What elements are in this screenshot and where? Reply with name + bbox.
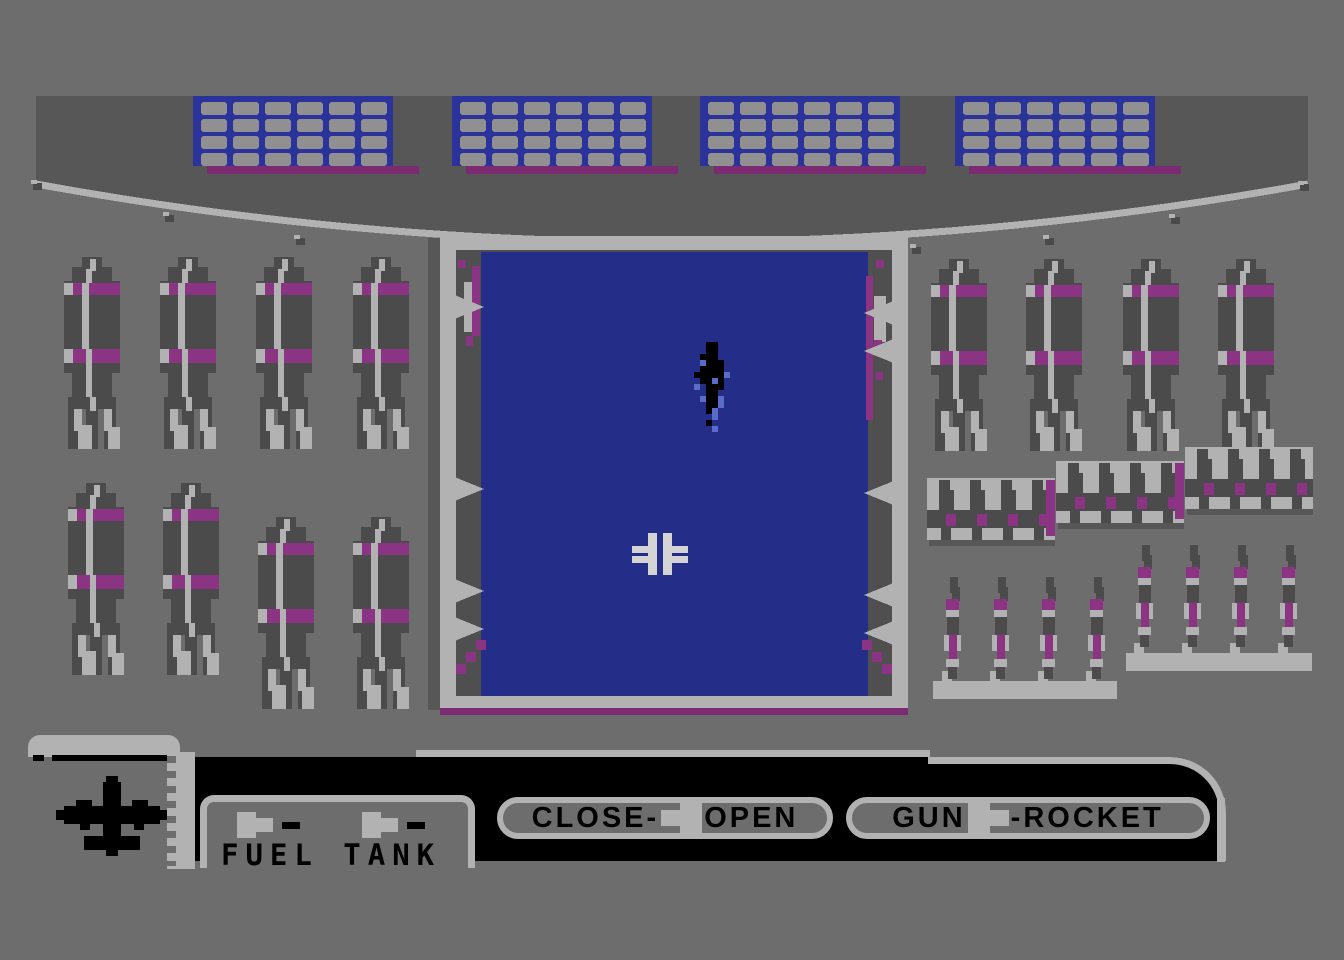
close-label: CLOSE- <box>532 802 660 835</box>
bomb <box>68 483 124 675</box>
bomb <box>258 517 314 709</box>
bomb <box>160 257 216 449</box>
fuel-tank-panel[interactable]: FUEL TANK <box>200 795 475 868</box>
hud-bar-trim <box>416 750 930 757</box>
rocket <box>1280 545 1297 647</box>
rocket <box>1232 545 1249 647</box>
aircraft-silhouette-icon <box>56 776 168 862</box>
rocket-label: -ROCKET <box>1011 802 1164 835</box>
aircraft-status-panel <box>28 735 180 757</box>
bomb-bay <box>428 236 908 715</box>
rocket <box>1040 577 1057 679</box>
open-label: OPEN <box>704 802 798 835</box>
bomb <box>353 517 409 709</box>
rocket <box>992 577 1009 679</box>
rocket <box>944 577 961 679</box>
bomb <box>931 259 987 451</box>
bomb-rack-right-top <box>931 259 1274 451</box>
bomb <box>1218 259 1274 451</box>
bomb <box>1123 259 1179 451</box>
panel-divider <box>52 755 168 761</box>
hud-bar-endline <box>1217 798 1225 862</box>
bomb <box>1026 259 1082 451</box>
fuel-selector-arrow-icon <box>362 812 425 838</box>
rocket-groups <box>933 545 1312 699</box>
panel-divider <box>33 755 44 761</box>
weapon-toggle[interactable]: GUN -ROCKET <box>846 797 1210 839</box>
fuel-tank-label: FUEL TANK <box>221 838 441 872</box>
gun-label: GUN <box>892 802 965 835</box>
rocket-shelf-racks <box>927 447 1313 546</box>
fuel-selector-arrow-icon <box>237 812 300 838</box>
bomb <box>353 257 409 449</box>
selector-arrow-left-icon <box>661 803 702 833</box>
bomb-rack-left-bottom <box>68 483 409 709</box>
bomb <box>256 257 312 449</box>
altitude-ruler <box>167 752 195 869</box>
bomb <box>163 483 219 675</box>
rocket <box>1136 545 1153 647</box>
bomb <box>64 257 120 449</box>
bomb-bay-view: FUEL TANK CLOSE- OPEN GUN -ROCKET <box>0 0 1344 960</box>
rocket <box>1088 577 1105 679</box>
selector-arrow-right-icon <box>968 803 1009 833</box>
bay-doors-toggle[interactable]: CLOSE- OPEN <box>497 797 833 839</box>
rocket <box>1184 545 1201 647</box>
bomb-rack-left-top <box>64 257 409 449</box>
